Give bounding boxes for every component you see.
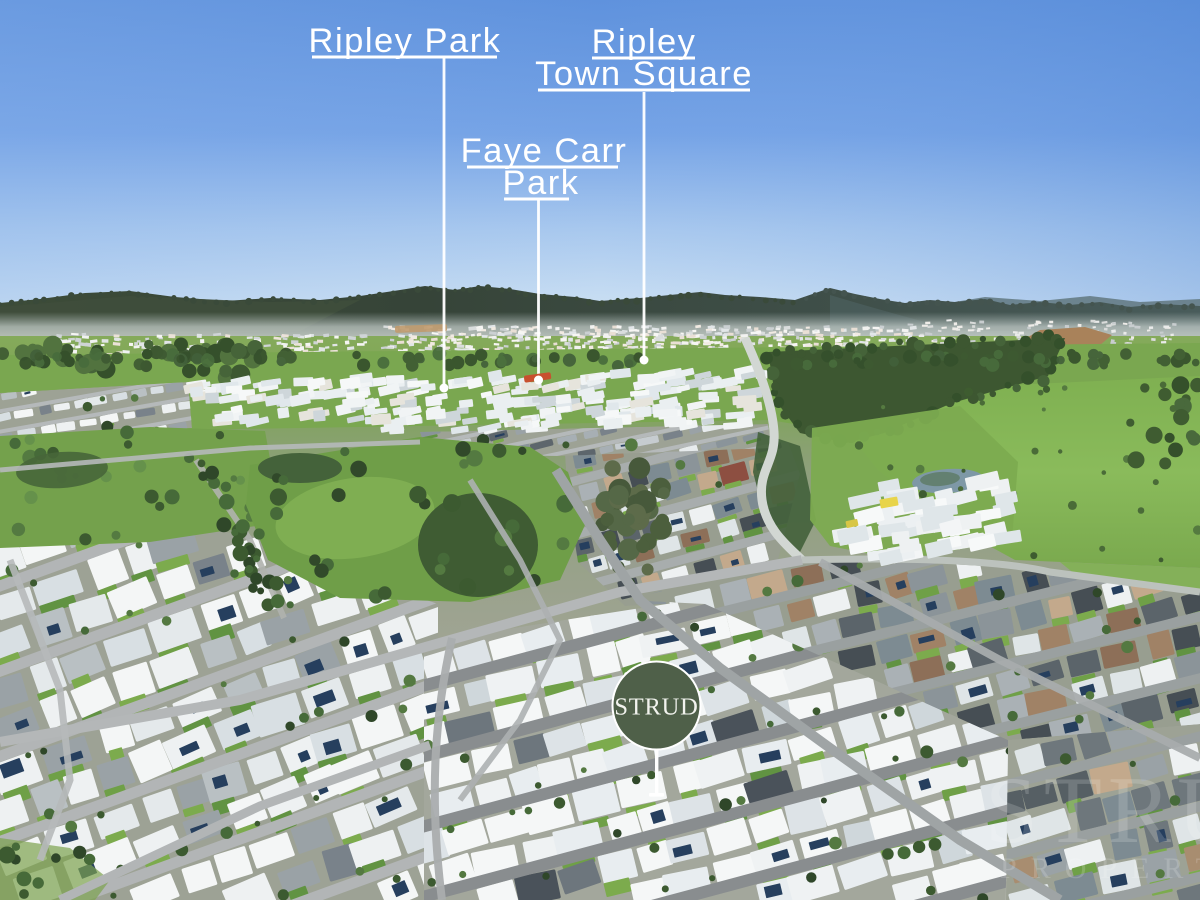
svg-text:STRUD: STRUD [614,694,698,721]
svg-text:STRUD: STRUD [985,757,1200,863]
svg-text:PROPERT: PROPERT [1000,852,1200,885]
svg-text:Park: Park [503,164,580,202]
svg-text:Ripley Park: Ripley Park [309,22,502,60]
svg-text:Town Square: Town Square [535,55,753,93]
